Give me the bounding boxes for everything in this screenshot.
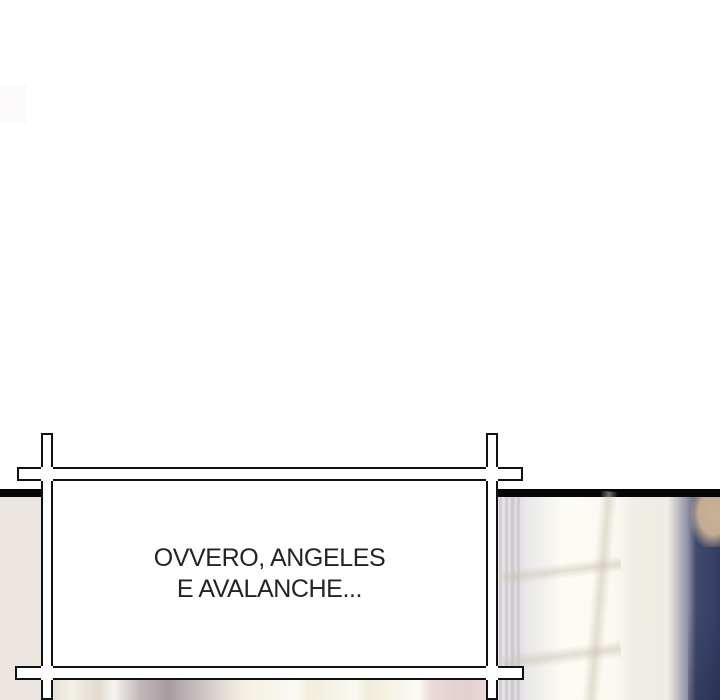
caption-box: OVVERO, ANGELES E AVALANCHE...: [53, 481, 486, 666]
frame-joint: [486, 467, 498, 481]
navy-curtain-shade: [688, 607, 720, 700]
frame-joint: [41, 467, 53, 481]
caption-line: E AVALANCHE...: [154, 574, 386, 605]
caption-text: OVVERO, ANGELES E AVALANCHE...: [154, 543, 386, 605]
frame-joint: [486, 666, 498, 680]
faint-smudge: [0, 85, 26, 123]
caption-line: OVVERO, ANGELES: [154, 543, 386, 574]
tan-curtain-highlight: [690, 497, 720, 547]
window-mullion-vertical: [580, 491, 618, 700]
caption-frame-top-line: [17, 467, 523, 481]
comic-page: OVVERO, ANGELES E AVALANCHE...: [0, 0, 720, 700]
frame-joint: [41, 666, 53, 680]
caption-frame-bottom-line: [15, 666, 524, 680]
